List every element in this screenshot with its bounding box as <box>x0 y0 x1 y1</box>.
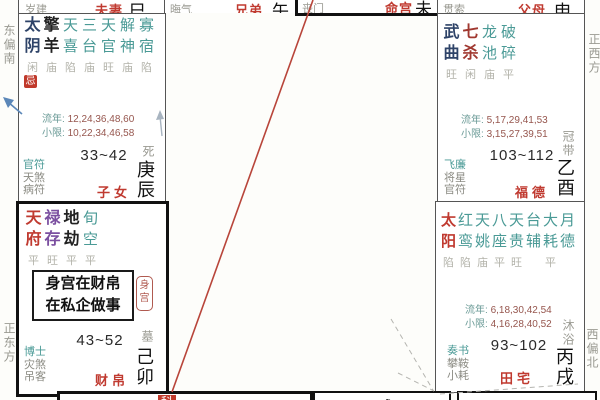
ganzhi-label: 丙戌 <box>555 347 575 387</box>
assistant-star: 将星 <box>444 172 466 185</box>
liunian-line: 流年: 12,24,36,48,60 <box>42 110 134 125</box>
branch-wu: 午 <box>272 0 289 13</box>
main-star: 武曲 <box>443 22 460 64</box>
minor-star: 破碎 <box>500 22 517 64</box>
ganzhi-label: 庚辰 <box>136 160 156 200</box>
bottom-palace-partial-1[interactable]: 陀铃天天 科 天左天天年 <box>57 391 313 400</box>
strip-life-palace-wei[interactable]: 丧门 命宫 未 <box>295 0 443 16</box>
brightness: 旺 <box>511 254 522 266</box>
ziwei-chart-screen: 东偏南 正东方 正西方 西偏北 岁建 夫妻 巳 晦气 兄弟 午 丧门 命宫 未 … <box>0 0 600 400</box>
assistant-star: 灾煞 <box>24 359 46 372</box>
brightness: 平 <box>28 252 39 264</box>
brightness: 旺 <box>47 252 58 264</box>
compass-label-due-west: 正西方 <box>586 33 600 75</box>
assistant-star: 吊客 <box>24 371 46 384</box>
note-line-1: 身宫在财帛 <box>34 273 132 295</box>
minor-star-label: 贯索 <box>443 1 465 13</box>
star-columns: 武曲旺 七杀闲 龙池庙 破碎平 <box>442 22 518 78</box>
strip-parents-shen[interactable]: 贯索 父母 申 <box>437 0 585 13</box>
note-line-2: 在私企做事 <box>34 295 132 317</box>
xiaoxian-label: 小限: <box>42 128 65 139</box>
branch-si: 巳 <box>129 0 146 13</box>
main-star: 擎羊 <box>43 15 60 57</box>
xiaoxian-values: 4,16,28,40,52 <box>491 319 552 330</box>
brightness: 庙 <box>484 66 495 78</box>
assistant-star: 攀鞍 <box>447 358 469 371</box>
palace-name-siblings: 兄弟 <box>235 0 263 13</box>
xiaoxian-label: 小限: <box>461 129 484 140</box>
branch-shen: 申 <box>554 0 571 13</box>
main-star: 太阴 <box>24 15 41 57</box>
brightness: 平 <box>545 254 556 266</box>
minor-star-label: 岁建 <box>25 1 47 13</box>
xiaoxian-line: 小限: 4,16,28,40,52 <box>465 315 552 330</box>
main-star: 禄存 <box>44 208 61 250</box>
changsheng-stage: 死 <box>140 145 157 159</box>
assistant-star: 天煞 <box>23 172 45 185</box>
brightness: 庙 <box>84 59 95 71</box>
assistant-star-stack: 官符 天煞 病符 <box>23 159 45 197</box>
main-star: 七杀 <box>462 22 479 64</box>
ganzhi-label: 乙酉 <box>556 158 576 198</box>
hua-ji-badge: 忌 <box>24 75 37 88</box>
xiaoxian-label: 小限: <box>465 319 488 330</box>
palace-name-fortune: 福德 <box>515 182 549 201</box>
dashed-link-line <box>398 373 434 391</box>
ganzhi-label: 己卯 <box>135 347 155 387</box>
assistant-star: 官符 <box>444 184 466 197</box>
partial-star-text: 天天天咸 <box>320 394 396 400</box>
palace-name-life: 命宫 <box>385 0 413 16</box>
life-palace-transit-line <box>172 0 313 392</box>
body-palace-note-box: 身宫在财帛 在私企做事 <box>32 270 134 321</box>
main-star: 天府 <box>25 208 42 250</box>
main-star: 太阳 <box>441 210 457 252</box>
changsheng-stage: 墓 <box>139 330 156 344</box>
minor-star: 旬空 <box>82 208 99 250</box>
age-range: 33~42 <box>69 147 139 164</box>
palace-name-spouse: 夫妻 <box>95 0 123 13</box>
brightness: 陷 <box>65 59 76 71</box>
brightness: 庙 <box>46 59 57 71</box>
liunian-line: 流年: 6,18,30,42,54 <box>465 301 552 316</box>
assistant-star-stack: 飞廉 将星 官符 <box>444 159 466 197</box>
age-range: 43~52 <box>65 332 135 349</box>
xiaoxian-values: 10,22,34,46,58 <box>68 128 135 139</box>
body-palace-badge: 身宫 <box>136 276 153 311</box>
partial-star-text: 天马 <box>465 394 503 400</box>
palace-name-property: 田宅 <box>500 368 534 387</box>
minor-star: 八座 <box>492 210 508 252</box>
minor-star-label: 丧门 <box>302 0 324 16</box>
star-columns: 太阴闲 擎羊庙 天喜陷 三台庙 天官旺 解神庙 寡宿陷 <box>23 15 156 71</box>
assistant-star-stack: 奏书 攀鞍 小耗 <box>447 345 469 383</box>
brightness: 平 <box>494 254 505 266</box>
brightness: 平 <box>85 252 96 264</box>
xiaoxian-line: 小限: 3,15,27,39,51 <box>461 125 548 140</box>
compass-label-west-north: 西偏北 <box>584 328 600 370</box>
brightness: 陷 <box>460 254 471 266</box>
brightness: 闲 <box>27 59 38 71</box>
brightness: 庙 <box>477 254 488 266</box>
star-columns: 天府平 禄存旺 地劫平 旬空平 <box>24 208 100 264</box>
star-columns: 太阳陷 红鸾陷 天姚庙 八座平 天贵旺 台辅 大耗平 月德 <box>440 210 576 266</box>
changsheng-stage: 冠带 <box>560 130 577 158</box>
brightness: 平 <box>66 252 77 264</box>
minor-star: 龙池 <box>481 22 498 64</box>
main-star: 地劫 <box>63 208 80 250</box>
brightness: 旺 <box>446 66 457 78</box>
xiaoxian-line: 小限: 10,22,34,46,58 <box>42 124 134 139</box>
minor-star: 天喜 <box>62 15 79 57</box>
bottom-palace-partial-3[interactable]: 天马 <box>457 391 597 400</box>
minor-star-label: 晦气 <box>170 1 192 13</box>
assistant-star: 官符 <box>23 159 45 172</box>
minor-star: 天官 <box>100 15 117 57</box>
brightness: 陷 <box>443 254 454 266</box>
partial-star-text: 陀铃天天 <box>65 395 141 400</box>
assistant-star: 飞廉 <box>444 159 466 172</box>
age-range: 93~102 <box>484 337 554 354</box>
age-range: 103~112 <box>482 147 562 164</box>
assistant-star: 奏书 <box>447 345 469 358</box>
assistant-star-stack: 博士 灾煞 吊客 <box>24 346 46 384</box>
strip-siblings-wu[interactable]: 晦气 兄弟 午 <box>164 0 297 13</box>
hua-badge-partial: 科 <box>158 395 176 400</box>
strip-spouse-si[interactable]: 岁建 夫妻 巳 <box>18 0 166 13</box>
assistant-star: 小耗 <box>447 370 469 383</box>
minor-star: 大耗 <box>543 210 559 252</box>
brightness: 陷 <box>141 59 152 71</box>
palace-wealth-mao[interactable]: 天府平 禄存旺 地劫平 旬空平 身宫在财帛 在私企做事 身宫 43~52 墓 己… <box>16 201 169 397</box>
palace-name-children: 子女 <box>97 182 131 201</box>
palace-fortune-you[interactable]: 武曲旺 七杀闲 龙池庙 破碎平 流年: 5,17,29,41,53 小限: 3,… <box>437 13 585 203</box>
bottom-palace-partial-2[interactable]: 天天天咸 <box>313 391 451 400</box>
minor-star: 寡宿 <box>138 15 155 57</box>
palace-children-chen[interactable]: 太阴闲 擎羊庙 天喜陷 三台庙 天官旺 解神庙 寡宿陷 忌 流年: 12,24,… <box>18 13 166 203</box>
partial-star-text: 天左天天年 <box>182 395 277 400</box>
assistant-star: 博士 <box>24 346 46 359</box>
branch-wei: 未 <box>415 0 432 16</box>
xiaoxian-values: 3,15,27,39,51 <box>487 129 548 140</box>
brightness: 庙 <box>122 59 133 71</box>
dashed-link-line <box>391 319 433 390</box>
minor-star: 天姚 <box>475 210 491 252</box>
assistant-star: 病符 <box>23 184 45 197</box>
minor-star: 红鸾 <box>458 210 474 252</box>
palace-property-xu[interactable]: 太阳陷 红鸾陷 天姚庙 八座平 天贵旺 台辅 大耗平 月德 流年: 6,18,3… <box>435 201 585 393</box>
brightness: 平 <box>503 66 514 78</box>
minor-star: 月德 <box>560 210 576 252</box>
palace-name-wealth: 财帛 <box>95 370 129 389</box>
liunian-line: 流年: 5,17,29,41,53 <box>461 111 548 126</box>
minor-star: 三台 <box>81 15 98 57</box>
compass-label-east-south: 东偏南 <box>1 24 18 66</box>
palace-name-parents: 父母 <box>518 0 546 13</box>
minor-star: 解神 <box>119 15 136 57</box>
brightness: 闲 <box>465 66 476 78</box>
minor-star: 天贵 <box>509 210 525 252</box>
changsheng-stage: 沐浴 <box>560 319 577 347</box>
minor-star: 台辅 <box>526 210 542 252</box>
brightness: 旺 <box>103 59 114 71</box>
